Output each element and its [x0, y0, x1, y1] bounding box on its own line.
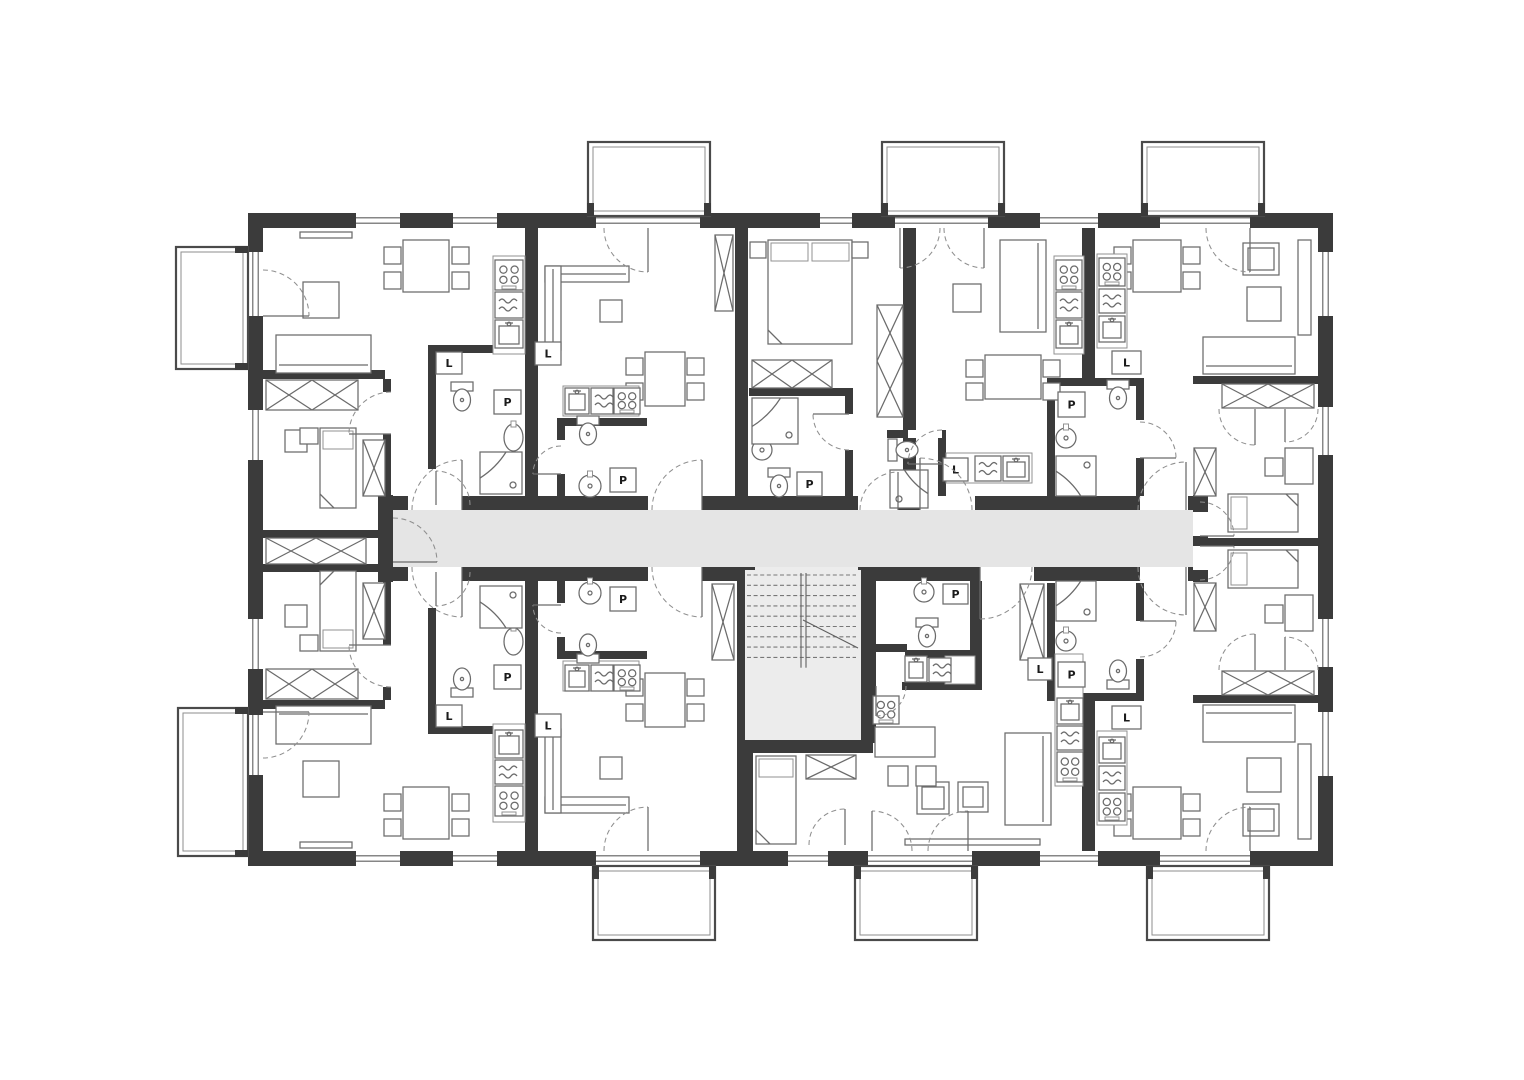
- fridge-f-letter: L: [445, 710, 452, 723]
- toilet-e: [1110, 387, 1127, 409]
- chair: [1265, 605, 1283, 623]
- basin-a-tap: [511, 421, 516, 427]
- basin-e: [1056, 428, 1076, 448]
- shaft-c: [877, 305, 903, 417]
- balcony-west-1: [176, 247, 248, 369]
- wall-opening: [876, 682, 902, 690]
- chair: [384, 272, 401, 289]
- corridor: [393, 510, 1193, 567]
- wall: [263, 530, 393, 538]
- window-bedroom-f: [248, 619, 263, 669]
- wall-opening: [428, 572, 436, 608]
- door-bedroom-e-swing: [1219, 409, 1255, 445]
- chair: [452, 819, 469, 836]
- basin-b: [579, 475, 601, 497]
- basin-j-tap: [1064, 627, 1069, 633]
- balcony-north-3-stub: [1141, 203, 1148, 216]
- coffee-table-d: [953, 284, 981, 312]
- coffee-table-f: [303, 761, 339, 797]
- basin-g: [579, 582, 601, 604]
- dining-table-f: [403, 787, 449, 839]
- basin-a: [504, 424, 523, 451]
- wall-opening: [1136, 621, 1144, 659]
- wall-opening: [845, 414, 853, 450]
- stove-e-panel: [1105, 282, 1119, 285]
- dishwasher-e: [1099, 289, 1125, 313]
- bed-stair-room-pillow: [759, 759, 793, 777]
- stove-i-island-panel: [879, 720, 893, 723]
- wall: [525, 567, 538, 851]
- window-f-2: [453, 851, 497, 866]
- basin-g-tap: [588, 578, 593, 584]
- chair: [384, 819, 401, 836]
- floor-plan-svg: LPLPPLPLLPLPPLLP: [0, 0, 1524, 1080]
- wall: [1193, 538, 1318, 546]
- sofa-d: [1000, 240, 1046, 332]
- wall-opening: [1193, 546, 1208, 570]
- door-closet-e-swing: [1285, 409, 1318, 442]
- floor-plan-page: LPLPPLPLLPLPPLLP: [0, 0, 1524, 1080]
- washer-i-letter: P: [951, 588, 959, 601]
- toilet-j: [1110, 660, 1127, 682]
- wardrobe-e: [1222, 384, 1314, 408]
- bed-double-c-pillow: [812, 243, 849, 261]
- wall: [557, 651, 647, 659]
- stove-f-panel: [502, 812, 516, 815]
- toilet-f: [454, 668, 471, 690]
- washer-box-i: [929, 658, 951, 682]
- island-table-i: [875, 727, 935, 757]
- basin-b-tap: [588, 471, 593, 477]
- wall-opening: [557, 603, 565, 637]
- dishwasher-f: [495, 760, 523, 784]
- balcony-south-3-stub: [1263, 866, 1270, 879]
- nightstand-c-2: [852, 242, 868, 258]
- wall: [1055, 378, 1144, 386]
- wall: [1193, 695, 1318, 703]
- wardrobe-a: [266, 380, 358, 410]
- washer-c-letter: P: [805, 478, 813, 491]
- nightstand-c-1: [750, 242, 766, 258]
- dining-table-e: [1133, 240, 1181, 292]
- window-balcony-j: [1160, 851, 1250, 866]
- chair: [1183, 794, 1200, 811]
- chair: [626, 358, 643, 375]
- bed-j-pillow: [1231, 553, 1247, 585]
- bed-e-pillow: [1231, 497, 1247, 529]
- balcony-north-2-stub: [881, 203, 888, 216]
- wall: [378, 496, 1208, 510]
- wall-opening: [980, 567, 1034, 581]
- window-balcony-g: [596, 851, 700, 866]
- washer-j-letter: P: [1067, 669, 1075, 682]
- wall: [1047, 583, 1055, 701]
- tv-board-a: [300, 232, 352, 238]
- balcony-south-1-stub: [709, 866, 716, 879]
- window-a-1: [356, 213, 400, 228]
- toilet-i: [919, 625, 936, 647]
- dining-table-d: [985, 355, 1041, 399]
- balcony-south-2: [855, 866, 977, 940]
- chair: [687, 383, 704, 400]
- door-bedroom-j-swing: [1219, 634, 1255, 670]
- sofa-e: [1203, 337, 1295, 374]
- wall-opening: [1193, 512, 1208, 536]
- basin-i: [914, 582, 934, 602]
- chair: [687, 358, 704, 375]
- balcony-south-2-stub: [971, 866, 978, 879]
- window-f-1: [356, 851, 400, 866]
- balcony-south-3-stub: [1146, 866, 1153, 879]
- chair: [384, 247, 401, 264]
- chair: [1043, 360, 1060, 377]
- coffee-table-j: [1247, 758, 1281, 792]
- stove-a-panel: [502, 286, 516, 289]
- washer-a-letter: P: [503, 396, 511, 409]
- window-e: [1318, 252, 1333, 316]
- chair: [1183, 819, 1200, 836]
- balcony-south-1: [593, 866, 715, 940]
- tv-board-e: [1298, 240, 1311, 335]
- door-balcony-a-swing: [263, 270, 309, 316]
- balcony-south-3: [1147, 866, 1269, 940]
- window-balcony-i: [868, 851, 972, 866]
- toilet-c: [771, 475, 788, 497]
- wall-opening: [648, 567, 702, 581]
- bed-f-pillow: [323, 630, 353, 648]
- balcony-south-1-stub: [592, 866, 599, 879]
- window-j: [1318, 712, 1333, 776]
- washer-b-letter: P: [619, 474, 627, 487]
- window-bedroom-j: [1318, 619, 1333, 667]
- chair: [966, 360, 983, 377]
- dining-table-g: [645, 673, 685, 727]
- stove-i-panel: [1063, 778, 1077, 781]
- window-balcony-a: [248, 252, 263, 316]
- wall-opening: [648, 496, 702, 510]
- toilet-b: [580, 423, 597, 445]
- window-d: [1040, 213, 1098, 228]
- desk-f: [285, 605, 307, 627]
- stove-j-panel: [1105, 817, 1119, 820]
- desk-e: [1285, 448, 1313, 484]
- balcony-north-1-stub: [704, 203, 711, 216]
- balcony-west-1-stub: [235, 246, 248, 253]
- wall-opening: [1140, 496, 1188, 510]
- chair: [1183, 247, 1200, 264]
- chair: [888, 766, 908, 786]
- chair: [626, 704, 643, 721]
- door-bath-e-swing: [1140, 422, 1176, 458]
- wall: [735, 228, 748, 510]
- basin-e-tap: [1064, 424, 1069, 430]
- coffee-table-e: [1247, 287, 1281, 321]
- window-i: [1040, 851, 1098, 866]
- window-a-2: [453, 213, 497, 228]
- wall-opening: [383, 645, 391, 687]
- wall: [873, 644, 907, 652]
- wall: [903, 228, 916, 510]
- sofa-a: [276, 335, 371, 373]
- balcony-west-1-stub: [235, 363, 248, 370]
- door-bath-c-swing: [813, 414, 849, 450]
- side-table-g: [600, 757, 622, 779]
- toilet-g: [580, 634, 597, 656]
- dining-table-a: [403, 240, 449, 292]
- washer-g-letter: P: [619, 593, 627, 606]
- dishwasher-d: [1056, 292, 1082, 318]
- wall: [557, 418, 647, 426]
- fridge-g-letter: L: [544, 720, 551, 733]
- door-bath-j-swing: [1140, 621, 1176, 657]
- stove-g-panel: [620, 687, 634, 690]
- window-balcony-f: [248, 715, 263, 775]
- balcony-west-2: [178, 708, 248, 856]
- wall-opening: [1136, 420, 1144, 458]
- dining-table-j: [1133, 787, 1181, 839]
- chair: [452, 272, 469, 289]
- dishwasher-b: [591, 388, 613, 414]
- chair: [1183, 272, 1200, 289]
- wardrobe-j: [1222, 671, 1314, 695]
- door-stair-bedroom-swing: [809, 809, 845, 845]
- closet-hall-west: [266, 538, 366, 564]
- dishwasher-d-2: [975, 456, 1001, 481]
- toilet-a: [454, 389, 471, 411]
- wall: [1082, 697, 1095, 851]
- washer-e-letter: P: [1067, 399, 1075, 412]
- balcony-north-2: [882, 142, 1004, 216]
- balcony-west-2-stub: [235, 707, 248, 714]
- balcony-west-2-stub: [235, 850, 248, 857]
- chair: [452, 794, 469, 811]
- chair: [687, 704, 704, 721]
- tv-board-i: [905, 839, 1040, 845]
- chair: [452, 247, 469, 264]
- door-closet-j-swing: [1285, 637, 1318, 670]
- dishwasher-j: [1099, 766, 1125, 790]
- dishwasher-i: [1057, 726, 1083, 750]
- dining-table-b: [645, 352, 685, 406]
- chair: [1265, 458, 1283, 476]
- wall: [749, 388, 853, 396]
- fridge-b-letter: L: [544, 348, 551, 361]
- tv-board-j: [1298, 744, 1311, 839]
- desk-j: [1285, 595, 1313, 631]
- chair: [687, 679, 704, 696]
- wardrobe-f: [266, 669, 358, 699]
- wall-opening: [383, 392, 391, 434]
- balcony-north-2-stub: [998, 203, 1005, 216]
- bed-a-pillow: [323, 431, 353, 449]
- wall: [1193, 376, 1318, 384]
- nightstand-f: [300, 635, 318, 651]
- bed-double-c-pillow: [771, 243, 808, 261]
- stove-b-panel: [620, 410, 634, 413]
- door-balcony-d-2-swing: [944, 228, 984, 268]
- fridge-a-letter: L: [445, 357, 452, 370]
- wall: [745, 740, 873, 753]
- stair-landing: [745, 668, 861, 740]
- sofa-j: [1203, 705, 1295, 742]
- window-bedroom-c: [820, 213, 852, 228]
- nightstand-a: [300, 428, 318, 444]
- basin-j: [1056, 631, 1076, 651]
- side-table-b: [600, 300, 622, 322]
- chair: [916, 766, 936, 786]
- balcony-north-1-stub: [587, 203, 594, 216]
- fridge-e-letter: L: [1123, 357, 1130, 370]
- basin-f: [504, 628, 523, 655]
- window-bedroom-a: [248, 410, 263, 460]
- wardrobe-c: [752, 360, 832, 388]
- chair: [966, 383, 983, 400]
- toilet-d: [896, 442, 918, 459]
- fridge-j-letter: L: [1123, 712, 1130, 725]
- washer-f-letter: P: [503, 671, 511, 684]
- balcony-north-1: [588, 142, 710, 216]
- dishwasher-a: [495, 292, 523, 318]
- dishwasher-g: [591, 665, 613, 691]
- wall: [525, 228, 538, 510]
- window-bedroom-e: [1318, 407, 1333, 455]
- tv-board-f: [300, 842, 352, 848]
- wall-opening: [1140, 567, 1188, 581]
- balcony-south-2-stub: [854, 866, 861, 879]
- basin-i-tap: [922, 578, 927, 584]
- wall-opening: [557, 440, 565, 474]
- window-stair-bedroom: [788, 851, 828, 866]
- chair: [384, 794, 401, 811]
- fridge-i-letter: L: [1036, 663, 1043, 676]
- sofa-i: [1005, 733, 1051, 825]
- balcony-north-3: [1142, 142, 1264, 216]
- stove-d-panel: [1062, 286, 1076, 289]
- balcony-north-3-stub: [1258, 203, 1265, 216]
- wall-opening: [428, 469, 436, 505]
